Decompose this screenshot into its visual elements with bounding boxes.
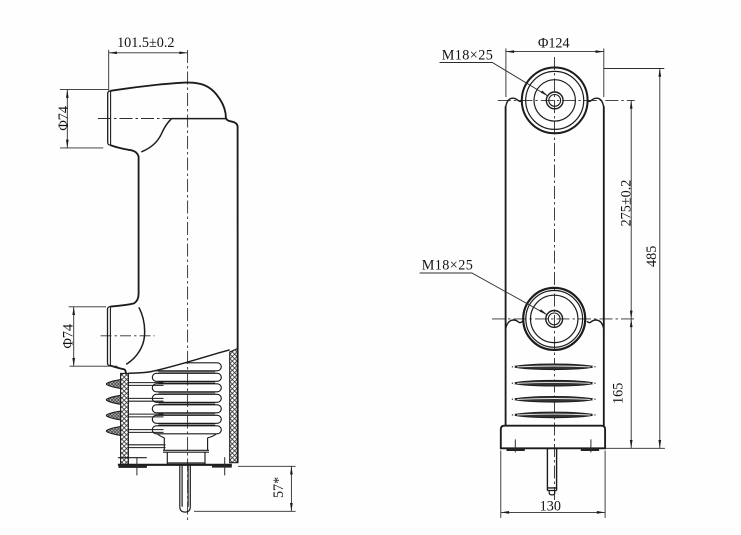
svg-text:Φ74: Φ74: [56, 106, 72, 131]
svg-text:Φ74: Φ74: [60, 324, 76, 349]
svg-text:130: 130: [540, 498, 561, 514]
svg-text:101.5±0.2: 101.5±0.2: [117, 35, 174, 51]
svg-text:275±0.2: 275±0.2: [619, 180, 635, 227]
svg-text:Φ124: Φ124: [538, 35, 570, 51]
svg-text:57*: 57*: [271, 477, 287, 498]
svg-text:M18×25: M18×25: [422, 258, 473, 274]
svg-text:165: 165: [611, 383, 627, 404]
svg-text:485: 485: [644, 246, 660, 267]
svg-text:M18×25: M18×25: [442, 48, 493, 64]
